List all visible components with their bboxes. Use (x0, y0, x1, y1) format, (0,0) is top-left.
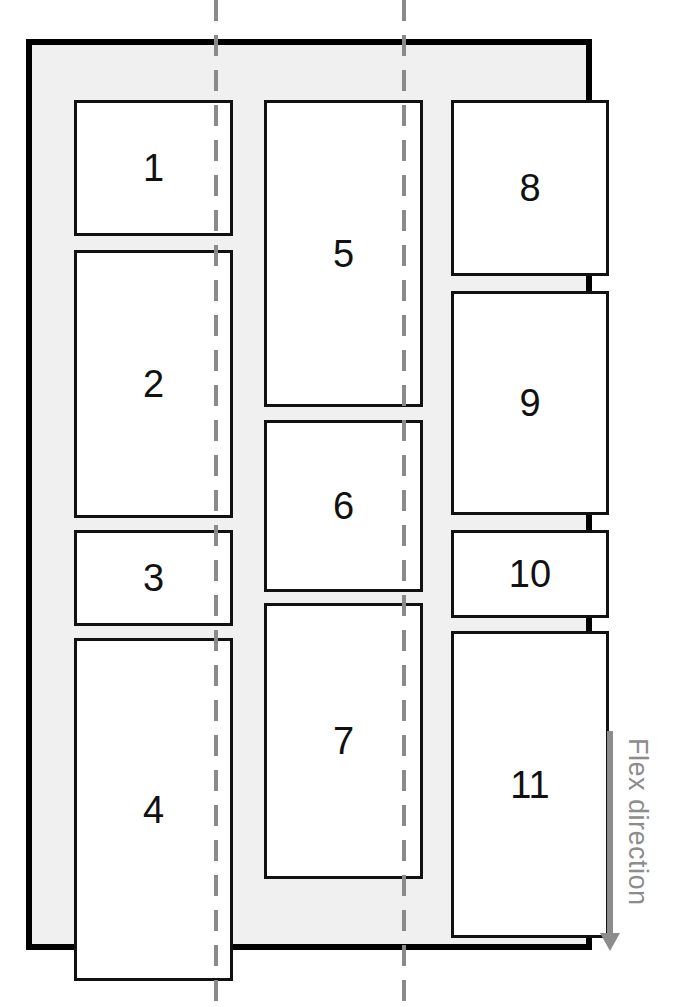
flex-direction-arrow-head-icon (600, 933, 620, 951)
flex-item-2: 2 (74, 250, 233, 518)
flex-item-10: 10 (451, 530, 609, 618)
wrap-guide-line-1 (214, 0, 218, 1007)
flex-item-2-label: 2 (143, 365, 164, 403)
flex-item-6: 6 (264, 420, 423, 592)
flex-item-6-label: 6 (333, 487, 354, 525)
flex-item-3-label: 3 (143, 559, 164, 597)
flex-item-7-label: 7 (333, 722, 354, 760)
flex-direction-arrow-shaft (607, 731, 613, 934)
flex-item-11-label: 11 (510, 766, 549, 804)
flex-item-4-label: 4 (143, 791, 164, 829)
wrap-guide-line-2 (402, 0, 406, 1007)
flex-item-1-label: 1 (143, 149, 164, 187)
flex-item-10-label: 10 (509, 555, 551, 593)
flex-item-9: 9 (451, 291, 609, 515)
flex-item-3: 3 (74, 530, 233, 626)
flex-item-5: 5 (264, 100, 423, 407)
flex-item-11: 11 (451, 631, 609, 938)
flex-item-1: 1 (74, 100, 233, 236)
flex-item-5-label: 5 (333, 235, 354, 273)
flex-direction-label: Flex direction (622, 738, 653, 906)
flex-container: 1 2 3 4 5 6 7 8 9 10 11 (26, 39, 592, 950)
flex-wrap-diagram: 1 2 3 4 5 6 7 8 9 10 11 Flex direction (0, 0, 674, 1007)
flex-item-8: 8 (451, 100, 609, 276)
flex-item-9-label: 9 (519, 384, 540, 422)
flex-item-7: 7 (264, 603, 423, 879)
flex-item-4: 4 (74, 638, 233, 981)
flex-item-8-label: 8 (519, 169, 540, 207)
